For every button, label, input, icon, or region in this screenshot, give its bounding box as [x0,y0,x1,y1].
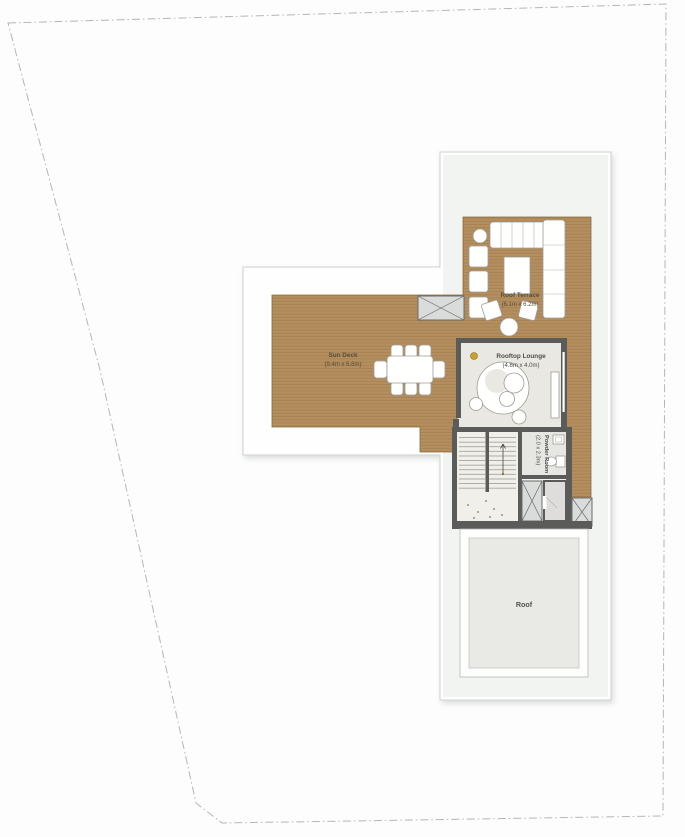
sofa-top [490,222,546,248]
floorplan-canvas: Roof Terrace (6.1m x 6.2m) Sun Deck (9.4… [0,0,685,837]
powder-room-label: Powder Room [543,435,549,473]
lamp-icon [471,353,478,360]
stair-divider-wall [486,432,490,492]
rooftop-lounge-label: Rooftop Lounge [496,353,546,360]
dining-chair [391,382,403,395]
lounge-seat [469,246,488,267]
stair-flight [489,435,516,491]
dining-table [387,356,433,383]
rooftop-lounge-dimensions: (4.8m x 4.0m) [502,363,539,369]
lounge-seat [469,271,488,292]
core-wall-left [452,427,457,521]
powder-room-wall-bottom [518,475,572,479]
dining-chair [419,382,431,395]
lounge-console [551,372,559,418]
core-wall-top [452,427,572,432]
side-table [473,229,487,243]
lounge-window-glazing [563,352,565,412]
lounge-pouf [470,398,483,411]
shaft-hatch [522,481,542,521]
terrace-pouf [500,318,518,336]
sun-deck-dimensions: (9.4m x 6.6m) [324,362,361,368]
elevator-door-gap [543,496,547,509]
powder-room-dimensions: (2.0 x 2.3m) [535,435,541,465]
stair-flight [459,435,485,491]
sun-deck-label: Sun Deck [328,352,358,359]
lounge-wall-top [456,338,567,343]
toilet-tank [556,456,565,467]
roof-parapet-wall [452,521,592,529]
lounge-wall-left [456,338,461,418]
elevator [543,481,567,521]
dining-chair [374,361,387,378]
lounge-pouf [512,410,526,424]
floorplan-svg: Roof Terrace (6.1m x 6.2m) Sun Deck (9.4… [0,0,685,837]
roof-area: Roof [452,521,592,677]
sofa-right [543,220,565,318]
elevator-cab [544,481,566,521]
lounge-door [453,419,459,428]
dining-chair [405,382,417,395]
round-table-large [504,373,524,393]
roof-terrace-dimensions: (6.1m x 6.2m) [501,302,538,308]
roof-terrace-label: Roof Terrace [501,292,540,299]
coffee-table [504,257,530,294]
stair-arrow-origin [502,473,504,475]
sink [553,435,564,444]
round-table-small [500,392,515,407]
vent-hatch [418,296,464,320]
rooftop-lounge: Rooftop Lounge (4.8m x 4.0m) [453,338,567,430]
dining-chair [432,361,445,378]
roof-label: Roof [516,600,533,609]
service-core: Powder Room (2.0 x 2.3m) [452,427,592,526]
